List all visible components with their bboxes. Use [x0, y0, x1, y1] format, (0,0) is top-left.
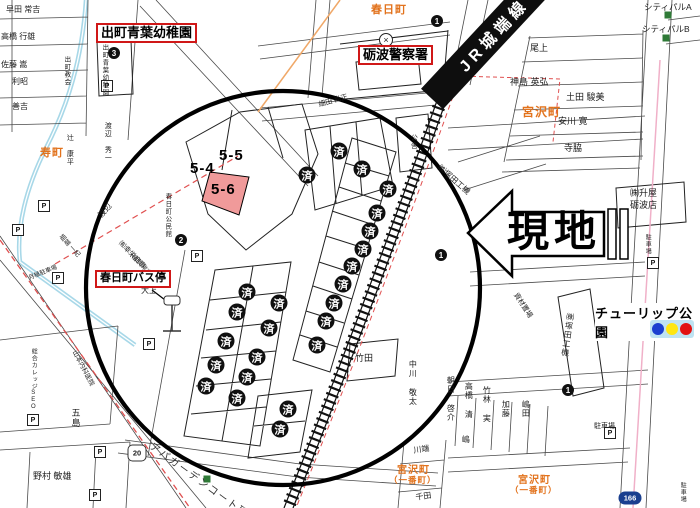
building-square-icon [663, 35, 670, 42]
map-text-label: 寺脇 [564, 144, 582, 153]
sold-lot-marker: 済 [362, 223, 379, 240]
map-text-label: 利昭 [12, 78, 28, 86]
map-text-label: 駐車場 [644, 234, 650, 255]
sold-lot-marker: 済 [280, 401, 297, 418]
map-text-label: 川端 [413, 445, 430, 456]
signal-red-lamp [680, 323, 692, 335]
parking-icon: P [143, 338, 155, 350]
map-text-label: 総合カレッジSEO [30, 348, 36, 411]
lot-number-label: 5-6 [211, 181, 236, 198]
numbered-stop-marker: 2 [175, 234, 187, 246]
site-arrow-label: 現地 [507, 211, 601, 253]
map-text-label: シティパルB [642, 25, 690, 34]
landmark-label: 春日町バス停 [95, 270, 171, 288]
lot-number-label: 5-5 [219, 147, 244, 164]
map-text-label: 辻 康平 [66, 134, 73, 166]
signal-blue-lamp [652, 323, 664, 335]
map-text-label: 加藤 [501, 400, 509, 418]
map-text-label: 五島 [70, 408, 79, 428]
sold-lot-marker: 済 [335, 276, 352, 293]
map-text-label: 駐車場 [679, 482, 685, 503]
map-text-label: 佐藤 嵩 [1, 61, 27, 69]
numbered-stop-marker: 3 [108, 47, 120, 59]
sold-lot-marker: 済 [229, 390, 246, 407]
parking-icon: P [38, 200, 50, 212]
sold-lot-marker: 済 [261, 320, 278, 337]
sold-lot-marker: 済 [229, 304, 246, 321]
map-text-label: 竹林 実 [482, 386, 490, 423]
map-text-label: 出町青葉幼稚園 [100, 44, 107, 97]
sold-lot-marker: 済 [344, 258, 361, 275]
sold-lot-marker: 済 [355, 241, 372, 258]
parking-icon: P [647, 257, 659, 269]
map-text-label: 嶋田 [521, 400, 529, 418]
parking-icon: P [52, 272, 64, 284]
numbered-stop-marker: 1 [562, 384, 574, 396]
sold-lot-marker: 済 [239, 284, 256, 301]
map-text-label: 野村 敏雄 [33, 472, 72, 481]
map-text-label: 尾上 [530, 44, 548, 53]
sold-lot-marker: 済 [198, 378, 215, 395]
map-text-label: 春日町公民館 [163, 193, 170, 238]
town-name-label: 春日町 [371, 1, 407, 17]
map-text-label: 高橋 行雄 [1, 33, 35, 41]
map-text-label: 安川 寛 [558, 117, 588, 126]
numbered-stop-marker: 1 [431, 15, 443, 27]
town-name-label: 宮沢町 [522, 103, 561, 120]
map-text-label: 駐車場 [594, 423, 615, 430]
route-number-badge: 166 [619, 492, 642, 505]
parking-icon: P [94, 446, 106, 458]
map-text-label: 竹田 [355, 354, 373, 363]
map-canvas: 出町青葉幼稚園砺波警察署春日町バス停春日町寿町宮沢町宮沢町（一番町）宮沢町（一番… [0, 0, 700, 508]
map-text-label: ㈱塚田工機 [560, 312, 575, 358]
sold-lot-marker: 済 [218, 333, 235, 350]
sold-lot-marker: 済 [331, 143, 348, 160]
parking-icon: P [89, 489, 101, 501]
map-text-label: 渡辺 秀一 [104, 122, 111, 162]
lot-number-label: 5-4 [190, 160, 215, 177]
map-text-label: 公舎 [410, 134, 417, 150]
town-name-label: 寿町 [40, 144, 64, 160]
sold-lot-marker: 済 [369, 205, 386, 222]
sold-lot-marker: 済 [239, 369, 256, 386]
map-text-label: 砺波店 [630, 201, 657, 210]
signal-yellow-lamp [666, 323, 678, 335]
traffic-light-icon [650, 320, 694, 338]
sold-lot-marker: 済 [309, 337, 326, 354]
building-square-icon [665, 12, 672, 19]
sold-lot-marker: 済 [299, 167, 316, 184]
map-text-label: 堀端 一紀 [57, 234, 81, 259]
sold-lot-marker: 済 [326, 295, 343, 312]
numbered-stop-marker: 1 [435, 249, 447, 261]
sold-lot-marker: 済 [354, 161, 371, 178]
map-text-label: 善吉 [12, 103, 28, 111]
map-text-label: 山本内科医院 [70, 350, 94, 388]
map-text-label: ㈱塚田工機 [435, 164, 471, 197]
parking-icon: P [191, 250, 203, 262]
map-text-label: 渡辺 [97, 202, 114, 220]
map-text-label: 朝日 啓介 [446, 376, 454, 422]
map-text-label: シティパルA [644, 3, 692, 12]
sold-lot-marker: 済 [318, 313, 335, 330]
map-text-label: 土田 駿美 [566, 93, 605, 102]
map-text-label: ㈱升屋 [630, 189, 657, 198]
map-text-label: 高橋 清 [464, 382, 472, 419]
sold-lot-marker: 済 [271, 295, 288, 312]
landmark-label: 砺波警察署 [358, 45, 433, 65]
map-text-label: 早田 常吉 [6, 6, 40, 14]
sold-lot-marker: 済 [249, 349, 266, 366]
map-text-label: 細田 尚正 [318, 94, 349, 109]
map-text-label: 神島 英弘 [510, 78, 549, 87]
route-number-badge: 20 [128, 445, 147, 462]
town-name-label: （一番町） [510, 484, 558, 496]
parking-icon: P [27, 414, 39, 426]
map-text-label: 資材置場 [512, 292, 533, 319]
map-text-label: 千田 [415, 492, 432, 503]
sold-lot-marker: 済 [272, 421, 289, 438]
map-text-label: 中川 敬太 [408, 360, 416, 406]
map-text-label: 出町教会 [62, 56, 69, 86]
sold-lot-marker: 済 [208, 357, 225, 374]
town-name-label: （一番町） [389, 474, 437, 486]
landmark-label: 出町青葉幼稚園 [96, 23, 197, 43]
parking-icon: P [12, 224, 24, 236]
map-text-label: 大上 [141, 287, 157, 295]
sold-lot-marker: 済 [380, 181, 397, 198]
map-text-label: 嶋 [461, 435, 469, 444]
